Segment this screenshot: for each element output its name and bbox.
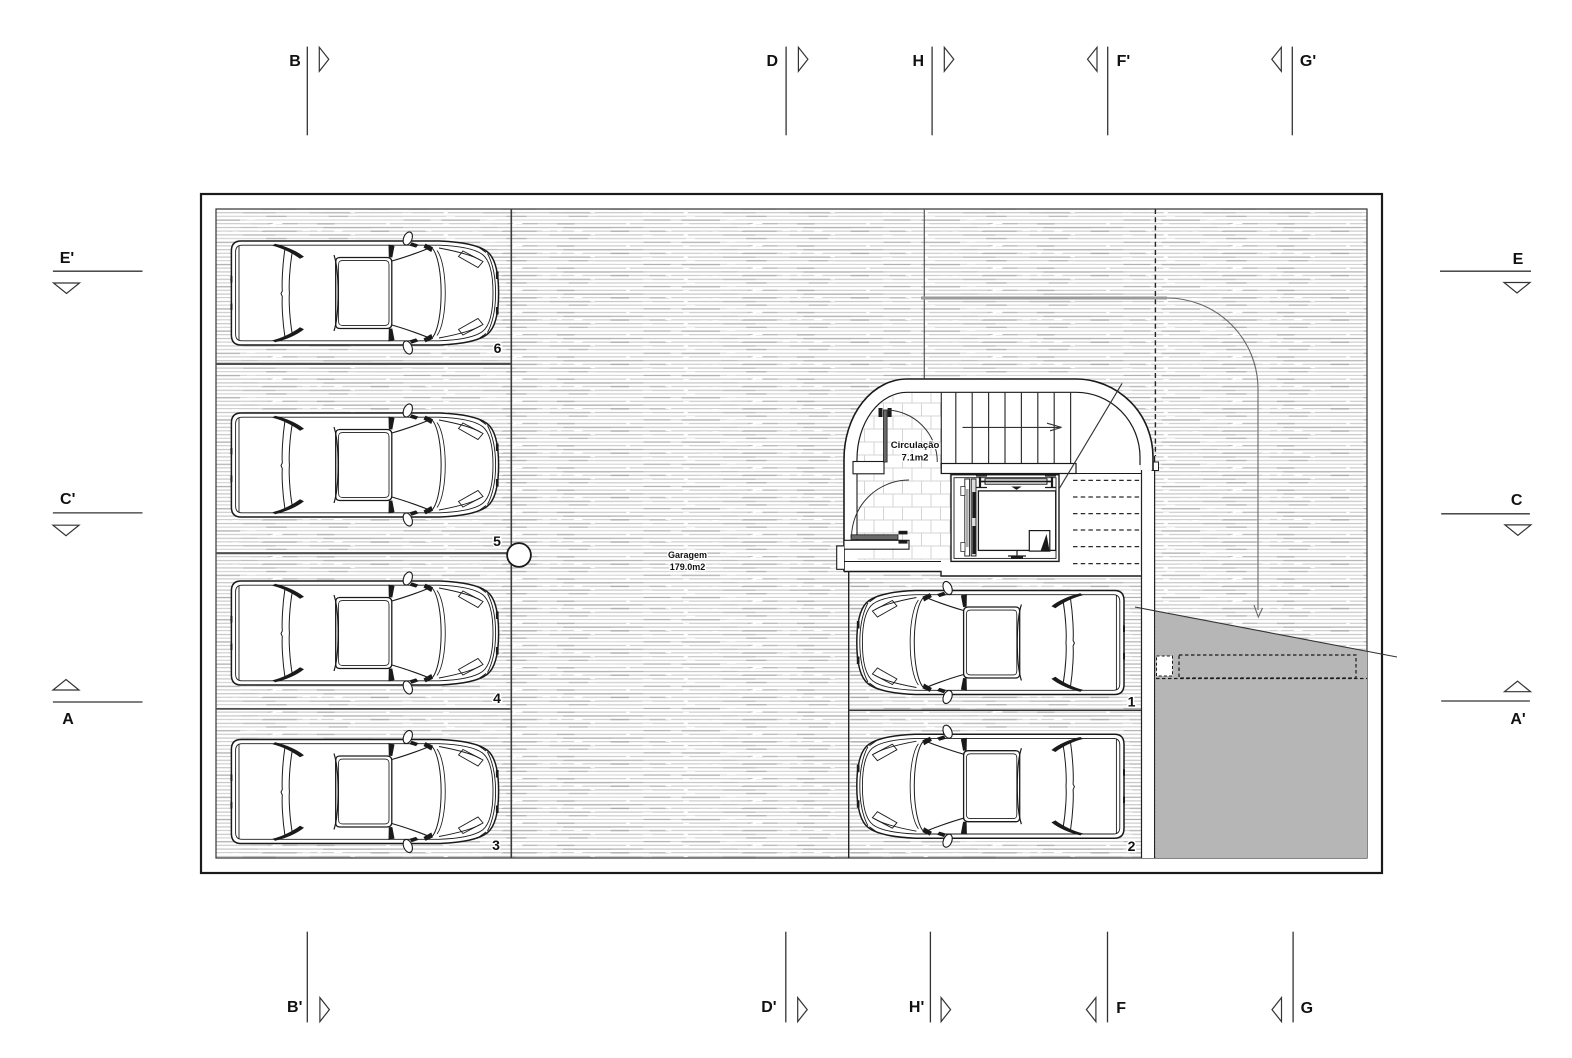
svg-text:5: 5: [493, 533, 501, 549]
svg-text:179.0m2: 179.0m2: [670, 562, 706, 572]
svg-text:Garagem: Garagem: [668, 550, 707, 560]
svg-text:A': A': [1510, 711, 1525, 728]
svg-text:C: C: [1511, 492, 1523, 509]
svg-text:2: 2: [1128, 838, 1136, 854]
svg-text:E': E': [60, 250, 74, 267]
svg-text:7.1m2: 7.1m2: [902, 453, 929, 464]
svg-text:G: G: [1301, 1000, 1313, 1017]
svg-text:C': C': [60, 491, 75, 508]
svg-text:H': H': [909, 999, 924, 1016]
svg-text:3: 3: [492, 837, 500, 853]
svg-text:4: 4: [493, 690, 501, 706]
svg-text:F: F: [1116, 1000, 1126, 1017]
svg-text:Circulação: Circulação: [891, 440, 940, 451]
svg-text:6: 6: [494, 340, 502, 356]
svg-text:D: D: [767, 53, 779, 70]
svg-text:G': G': [1300, 53, 1316, 70]
svg-text:D': D': [761, 999, 776, 1016]
svg-text:B': B': [287, 999, 302, 1016]
svg-text:A: A: [62, 711, 74, 728]
svg-text:1: 1: [1128, 694, 1136, 710]
svg-text:F': F': [1117, 53, 1131, 70]
svg-text:H: H: [913, 53, 925, 70]
svg-text:B: B: [289, 53, 301, 70]
svg-text:E: E: [1513, 251, 1524, 268]
